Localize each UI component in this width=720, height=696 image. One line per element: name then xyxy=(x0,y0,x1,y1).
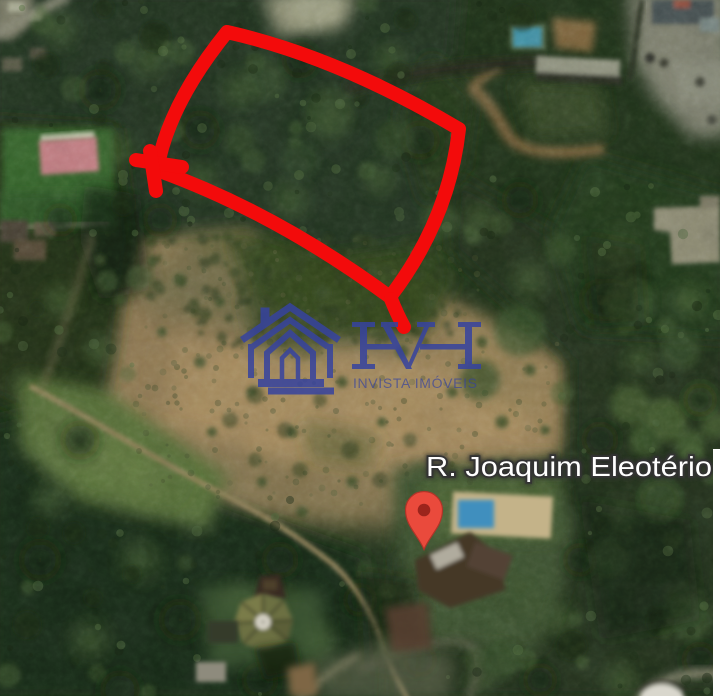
svg-text:INVISTA IMÓVEIS: INVISTA IMÓVEIS xyxy=(353,375,477,391)
svg-text:R. Joaquim Eleotério: R. Joaquim Eleotério xyxy=(426,451,712,482)
